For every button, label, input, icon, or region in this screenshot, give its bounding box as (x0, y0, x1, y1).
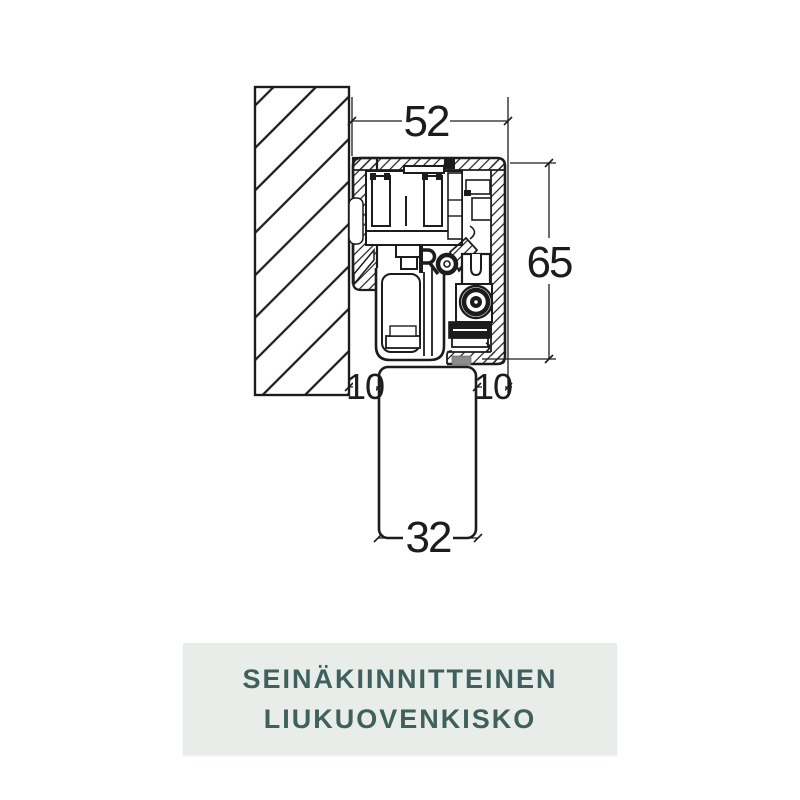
dimension-wall-clearance: 10 (345, 366, 384, 407)
technical-drawing-page: 52 65 10 (0, 0, 800, 800)
dimension-door-offset: 10 (473, 366, 512, 407)
track-right-band (491, 158, 505, 364)
caption-line-1: SEINÄKIINNITTEINEN (242, 663, 557, 695)
caption-line-2: LIUKUOVENKISKO (264, 703, 537, 735)
door-seal (452, 356, 471, 365)
wall-hatching (255, 87, 349, 395)
carriage-left-post (372, 176, 390, 226)
screw-recess (349, 198, 363, 244)
roller-carriage (366, 166, 491, 245)
carriage-right-post (424, 176, 442, 226)
caption-banner: SEINÄKIINNITTEINEN LIUKUOVENKISKO (183, 643, 617, 755)
dimension-label-10-left: 10 (346, 366, 384, 407)
dimension-label-52: 52 (404, 97, 449, 146)
hanger-mechanism (376, 238, 492, 365)
top-seal (444, 159, 455, 169)
roller-wheel (460, 286, 492, 318)
inner-profile-steps (464, 180, 491, 239)
wall-section (255, 87, 349, 395)
dimension-label-65: 65 (527, 238, 572, 287)
cross-section-drawing: 52 65 10 (0, 0, 800, 580)
dimension-label-10-right: 10 (474, 366, 512, 407)
hanger-stem (396, 245, 422, 257)
dimension-label-32: 32 (406, 513, 451, 562)
